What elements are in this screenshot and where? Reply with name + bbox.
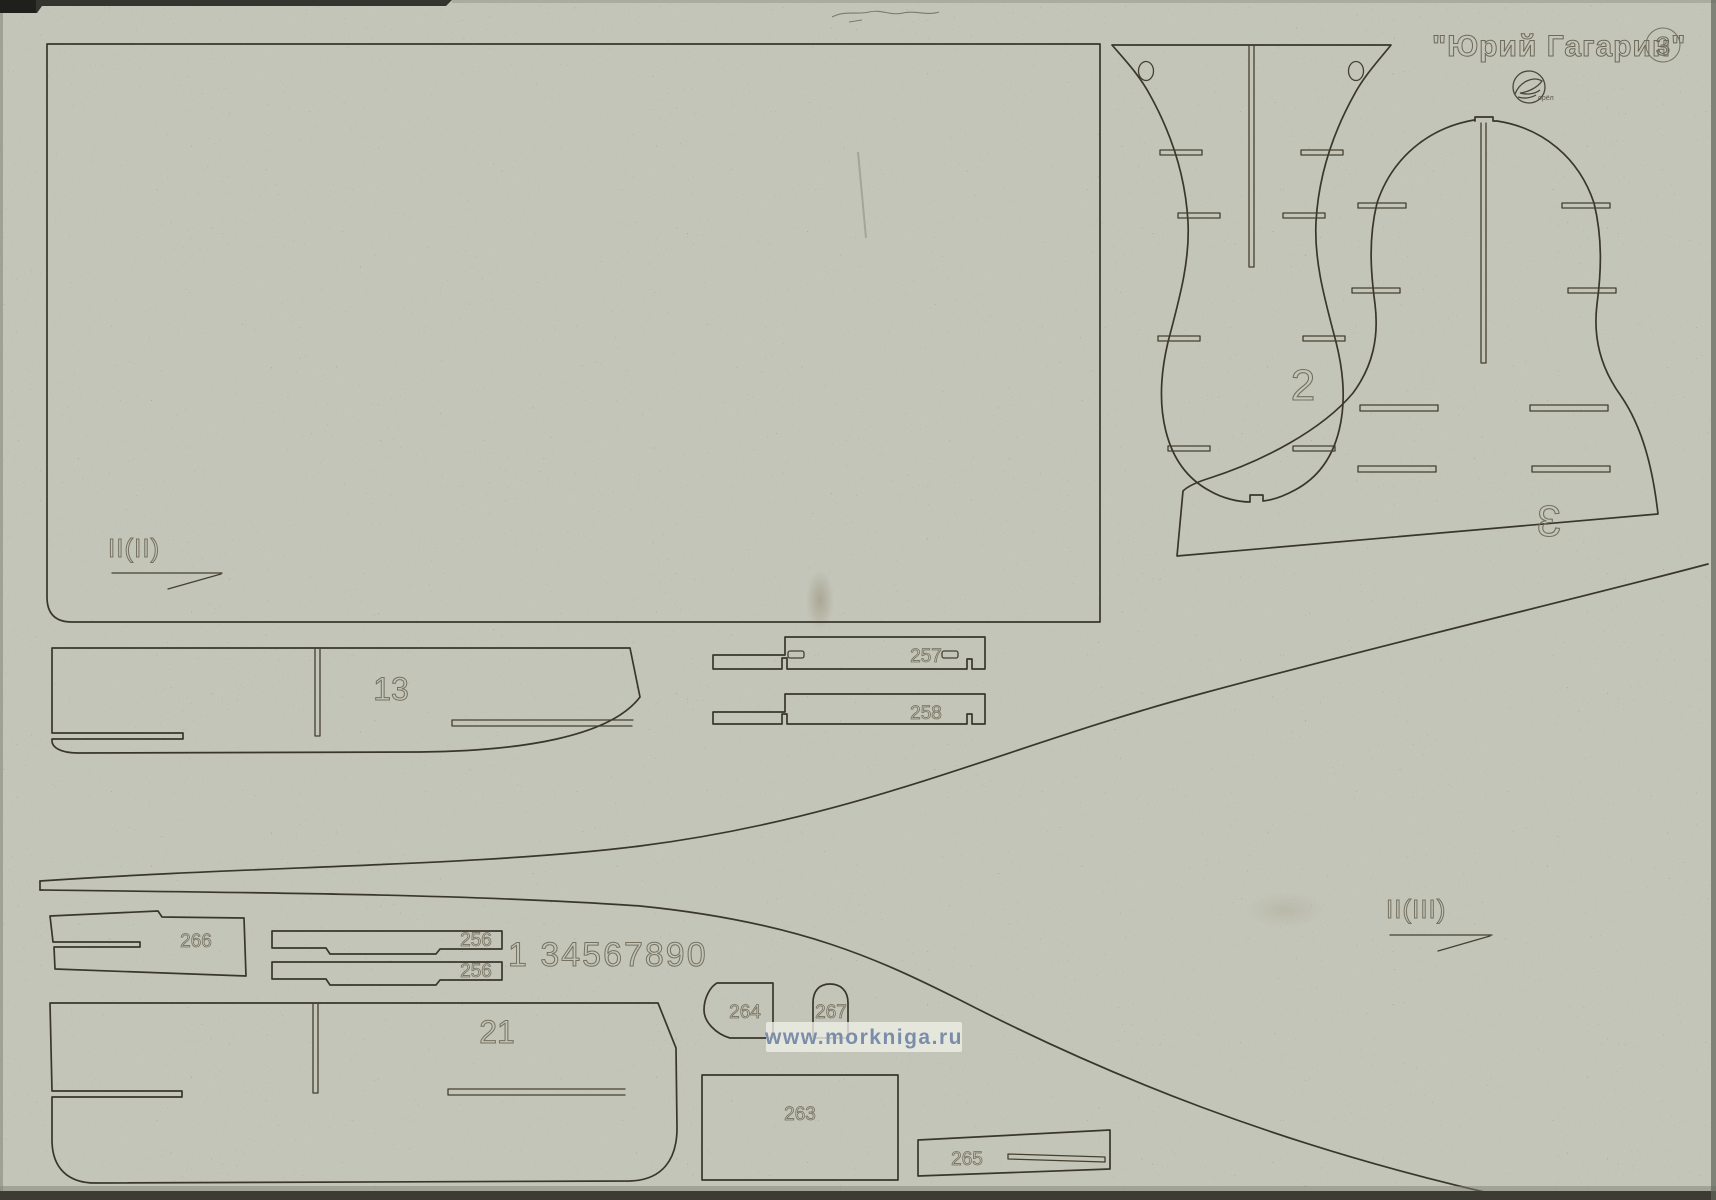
part-3-label-mirrored: 3	[1537, 497, 1561, 546]
part-267-label: 267	[815, 1002, 847, 1023]
stain-smudge	[806, 570, 834, 630]
calibration-digits: 1 34567890	[508, 936, 708, 974]
part-256b-label: 256	[460, 961, 492, 982]
sheet-title: "Юрий Гагарин"	[1432, 30, 1686, 63]
stain-smudge	[1245, 892, 1325, 928]
part-265-label: 265	[951, 1149, 983, 1170]
part-263-label: 263	[784, 1104, 816, 1125]
scan-edge-left	[0, 13, 3, 1191]
part-258-label: 258	[910, 703, 942, 724]
part-257-label: 257	[910, 646, 942, 667]
logo-text: орёл	[1538, 95, 1554, 102]
laser-cut-sheet-scan: "Юрий Гагарин" 3 орёл II(II) 2	[0, 0, 1716, 1200]
watermark: www.morkniga.ru	[764, 1022, 963, 1052]
scan-edge-right	[1711, 0, 1716, 1200]
part-13-label: 13	[373, 671, 409, 707]
scan-edge-bottom	[0, 1191, 1716, 1200]
scan-edge-bottom-fade	[0, 1186, 1716, 1191]
large-panel-label: II(II)	[108, 533, 160, 563]
part-256a-label: 256	[460, 930, 492, 951]
sheet-drawing: "Юрий Гагарин" 3 орёл II(II) 2	[0, 0, 1716, 1200]
watermark-text: www.morkniga.ru	[764, 1026, 963, 1049]
part-264-label: 264	[729, 1002, 761, 1023]
hull-panel-label: II(III)	[1386, 894, 1446, 924]
part-21-label: 21	[479, 1014, 515, 1050]
paper-fleck-texture	[0, 0, 1716, 1200]
part-266-label: 266	[180, 931, 212, 952]
part-2-label: 2	[1291, 361, 1315, 410]
scan-edge-top-left-corner	[0, 0, 36, 13]
scan-edge-top-right	[452, 0, 1716, 3]
sheet-number: 3	[1656, 31, 1670, 61]
